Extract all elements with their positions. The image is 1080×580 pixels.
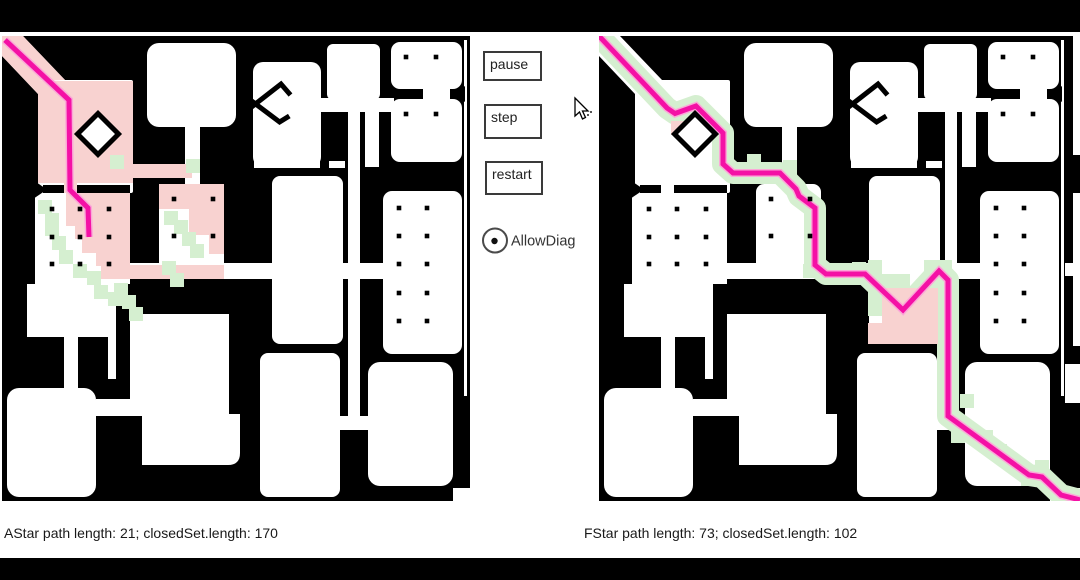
- svg-text:AllowDiag: AllowDiag: [511, 234, 575, 250]
